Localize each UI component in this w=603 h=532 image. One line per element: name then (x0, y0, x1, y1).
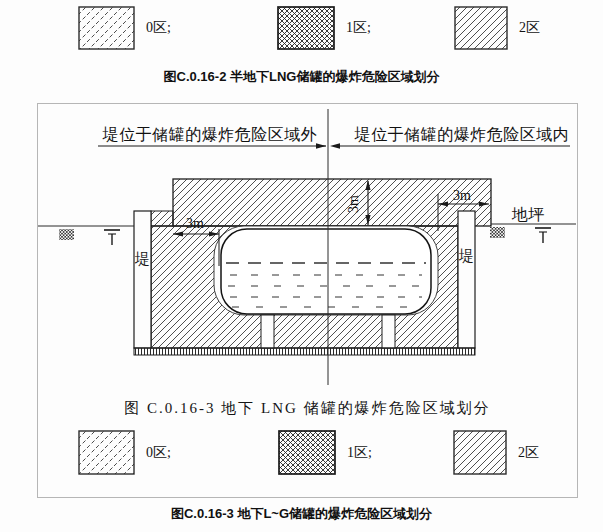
dim-right-label: 3m (453, 188, 471, 203)
zone2-swatch-icon (454, 6, 508, 50)
legend-item-zone0: 0区; (78, 6, 171, 50)
tank-leg-right (382, 315, 395, 348)
legend-row-top: 0区; 1区; 2区 (0, 6, 603, 56)
legend-label-zone2: 2区 (519, 19, 540, 37)
zone0-swatch-icon (78, 6, 135, 50)
note-right: 堤位于储罐的爆炸危险区域内 (354, 126, 570, 143)
lng-tank (221, 229, 431, 314)
water-table-icon-left (104, 230, 120, 245)
note-leader-arrows (98, 143, 570, 149)
figure-caption-top: 图C.0.16-2 半地下LNG储罐的爆炸危险区域划分 (0, 68, 603, 86)
legend-item-zone1: 1区; (278, 430, 372, 475)
zone2-top-band (173, 179, 491, 226)
left-shoulder (151, 211, 173, 226)
tank-leg-left (261, 315, 274, 348)
water-table-icon-right (535, 228, 551, 243)
legend-item-zone2: 2区 (453, 430, 539, 475)
legend-item-zone0: 0区; (78, 430, 171, 475)
legend-label-zone0: 0区; (146, 444, 171, 462)
soil-hatch-icon-left (59, 229, 74, 240)
legend-row-bottom: 0区; 1区; 2区 (38, 430, 577, 480)
lng-tank-diagram: 堤 堤 地坪 (38, 104, 577, 394)
dim-center-label: 3m (346, 195, 361, 213)
legend-item-zone1: 1区; (277, 6, 371, 50)
zone2-swatch-icon (453, 430, 507, 475)
dike-right-label: 堤 (458, 248, 474, 264)
dike-left (134, 211, 151, 348)
ground-label: 地坪 (511, 206, 544, 223)
dike-right (458, 211, 475, 348)
document-page: { "page": { "colors": { "ink": "#1c1c1c"… (0, 0, 603, 532)
soil-hatch-icon-right (490, 227, 505, 238)
figure-frame: 堤 堤 地坪 (37, 103, 578, 498)
figure-caption-inner: 图 C.0.16-3 地下 LNG 储罐的爆炸危险区域划分 (38, 399, 577, 418)
legend-label-zone2: 2区 (518, 444, 539, 462)
zone0-swatch-icon (78, 430, 135, 475)
legend-item-zone2: 2区 (454, 6, 540, 50)
foundation-slab (134, 348, 475, 355)
zone1-swatch-icon (277, 6, 335, 50)
note-left: 堤位于储罐的爆炸危险区域外 (102, 126, 318, 143)
legend-label-zone1: 1区; (346, 19, 371, 37)
zone1-swatch-icon (278, 430, 336, 475)
dim-left-label: 3m (186, 216, 204, 231)
figure-caption-bottom: 图C.0.16-3 地下L~G储罐的爆炸危险区域划分 (0, 505, 603, 523)
dike-left-label: 堤 (134, 251, 150, 267)
legend-label-zone1: 1区; (347, 444, 372, 462)
legend-label-zone0: 0区; (146, 19, 171, 37)
